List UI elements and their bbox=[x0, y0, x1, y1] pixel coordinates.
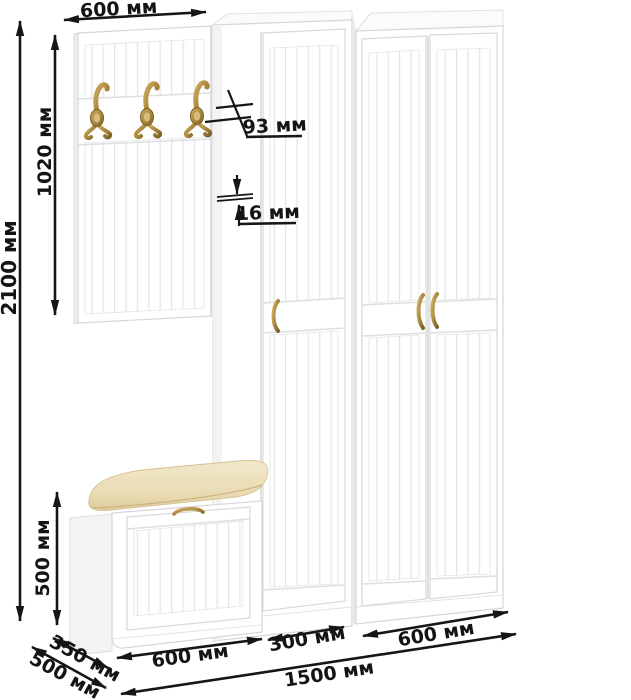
dim-bench-height-label: 500 мм bbox=[32, 519, 54, 596]
dim-bench-width-label: 600 мм bbox=[150, 640, 230, 672]
diagram-canvas: 600 мм 1020 мм 2100 мм 93 мм 16 мм 500 м… bbox=[0, 0, 631, 700]
dim-panel-height: 1020 мм bbox=[34, 35, 56, 315]
dim-total-height-label: 2100 мм bbox=[0, 220, 21, 315]
dim-total-height: 2100 мм bbox=[0, 21, 21, 621]
furniture-dimension-diagram: 600 мм 1020 мм 2100 мм 93 мм 16 мм 500 м… bbox=[0, 0, 631, 700]
bench-side bbox=[70, 514, 112, 654]
wardrobe bbox=[356, 10, 503, 624]
dim-panel-width-label: 600 мм bbox=[79, 0, 158, 22]
dim-hook-depth-label: 93 мм bbox=[242, 113, 307, 138]
shoe-bench bbox=[70, 460, 268, 654]
dim-panel-thickness-label: 16 мм bbox=[235, 201, 300, 225]
dim-panel-width: 600 мм bbox=[64, 0, 206, 22]
coat-hook-panel bbox=[74, 26, 211, 324]
dim-bench-height: 500 мм bbox=[32, 492, 57, 625]
dim-panel-height-label: 1020 мм bbox=[34, 107, 56, 198]
